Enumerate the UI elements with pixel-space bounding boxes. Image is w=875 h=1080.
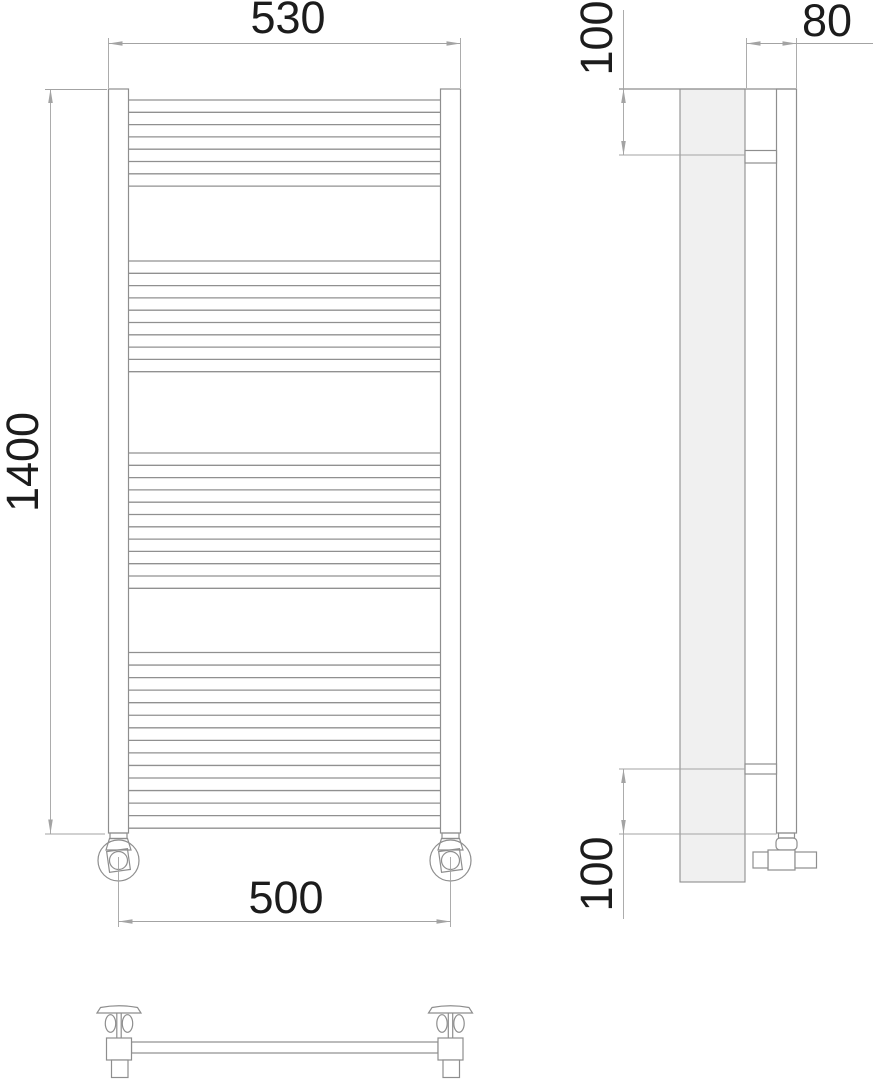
front-right-post <box>441 89 461 833</box>
dim-overall-height: 1400 <box>0 89 107 834</box>
dim-wall-depth: 80 <box>747 0 874 88</box>
dim-bracket-offset-bottom: 100 <box>571 769 777 919</box>
dim-connection-spacing: 500 <box>119 857 451 927</box>
side-valve <box>753 833 817 870</box>
dim-overall-width: 530 <box>109 0 461 88</box>
dim-overall-width-label: 530 <box>250 0 325 43</box>
dim-wall-depth-label: 80 <box>802 0 852 46</box>
dim-bracket-offset-bottom-label: 100 <box>571 836 622 911</box>
dim-bracket-offset-top-label: 100 <box>571 0 622 75</box>
top-view <box>97 1006 473 1078</box>
dim-overall-height-label: 1400 <box>0 412 48 512</box>
side-post <box>777 89 797 833</box>
drawing-canvas: 530 1400 500 80 100 <box>0 0 875 1080</box>
side-panel <box>680 89 745 882</box>
front-rungs <box>129 100 441 828</box>
side-bracket-top <box>745 151 777 164</box>
top-view-bar <box>132 1042 439 1053</box>
dim-connection-spacing-label: 500 <box>248 872 323 923</box>
side-bracket-bottom <box>745 764 777 774</box>
side-view <box>619 89 817 882</box>
front-left-post <box>109 89 129 833</box>
technical-drawing: 530 1400 500 80 100 <box>0 0 875 1080</box>
front-view <box>98 89 471 881</box>
